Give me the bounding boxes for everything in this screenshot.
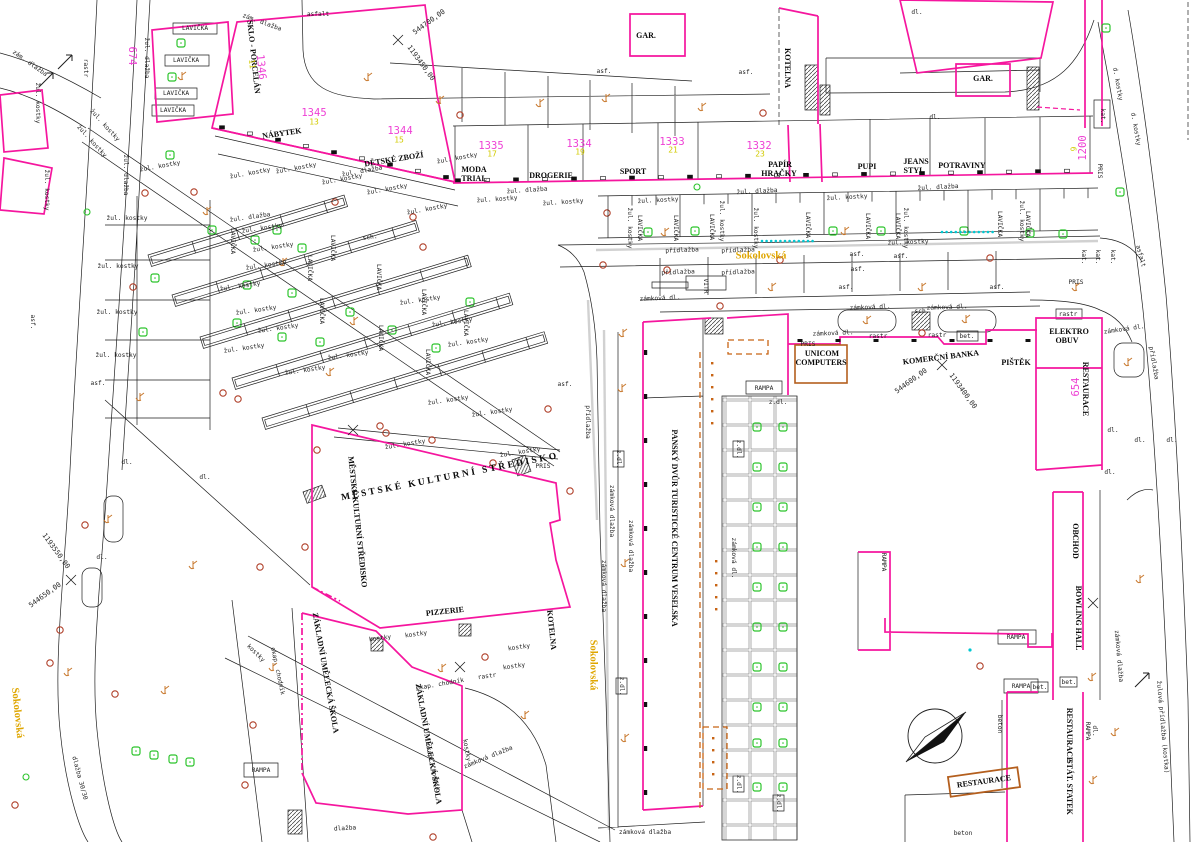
map-label: bet. xyxy=(1033,684,1048,691)
map-label: LAVIČKA xyxy=(329,235,338,261)
cyan-dot-icon xyxy=(788,240,791,243)
map-label: přídlažba xyxy=(721,245,755,254)
map-label: 17 xyxy=(487,150,497,159)
cyan-dot-icon xyxy=(968,648,971,651)
map-label: dl. xyxy=(199,474,210,481)
cyan-dot-icon xyxy=(959,231,962,234)
map-label: dl. xyxy=(1166,437,1177,444)
map-label: rastr xyxy=(1059,311,1078,318)
map-label: RAMPA xyxy=(755,385,774,392)
map-label: COMPUTERS xyxy=(795,358,847,367)
map-label: OBUV xyxy=(1055,336,1078,345)
map-label: RAMPA xyxy=(1007,634,1026,641)
map-label: LAVIČKA xyxy=(375,264,384,290)
map-label: RAMPA xyxy=(1084,722,1091,741)
map-label: z.dl. xyxy=(615,450,622,469)
map-label: zámková dl. xyxy=(730,538,738,579)
map-label: dl. xyxy=(929,114,940,121)
stairs-icon xyxy=(459,624,471,636)
map-label: beton xyxy=(954,830,973,837)
map-label: 13 xyxy=(309,118,319,127)
map-label: přídlažba xyxy=(721,267,755,276)
map-label: dl. xyxy=(121,459,132,466)
stairs-icon xyxy=(805,65,818,110)
map-label: žul. kostky xyxy=(34,83,42,124)
map-label: LAVIČKA xyxy=(672,215,681,241)
map-label: 21 xyxy=(668,146,678,155)
cyan-dot-icon xyxy=(784,240,787,243)
cyan-dot-icon xyxy=(968,231,971,234)
map-label: asf. xyxy=(739,69,754,76)
map-label: zámková dlažba xyxy=(619,828,671,836)
map-label: 15 xyxy=(394,136,404,145)
map-label: dlažba xyxy=(334,823,357,832)
cyan-dot-icon xyxy=(811,240,814,243)
map-label: sch. xyxy=(915,308,930,315)
cyan-dot-icon xyxy=(807,240,810,243)
cyan-dot-icon xyxy=(955,231,958,234)
map-label: LAVIČKA xyxy=(318,298,327,324)
map-label: PANSKÝ DVŮR TURISTICKÉ CENTRUM VESELSKA xyxy=(670,429,680,627)
map-label: 9 xyxy=(1070,146,1079,151)
map-label: RAMPA xyxy=(880,553,887,572)
map-label: kat. xyxy=(1099,109,1106,124)
map-label: LAVIČKA xyxy=(804,212,813,238)
stairs-icon xyxy=(820,85,830,115)
map-label: žul. kostky xyxy=(43,170,51,211)
stairs-icon xyxy=(288,810,302,834)
map-label: dl. xyxy=(1091,725,1098,736)
map-label: KOTELNA xyxy=(783,48,792,88)
map-label: LAVIČKA xyxy=(229,228,238,254)
map-label: přídlažba xyxy=(665,245,699,254)
map-root: MODATRIALDROGERIESPORTPAPÍRHRAČKYPUPIJEA… xyxy=(0,0,1191,842)
map-label: rastr xyxy=(82,59,89,78)
map-label: LAVIČKA xyxy=(306,255,315,281)
map-label: 1200 xyxy=(1077,135,1089,160)
map-label: OBCHOD xyxy=(1071,523,1080,559)
cyan-dot-icon xyxy=(950,231,953,234)
map-label: žul. kostky xyxy=(718,201,726,242)
map-label: rastr xyxy=(869,333,888,340)
stairs-icon xyxy=(1027,67,1039,110)
map-label: RAMPA xyxy=(1012,683,1031,690)
map-label: 19 xyxy=(575,148,585,157)
map-label: dl. xyxy=(911,9,922,16)
cyan-dot-icon xyxy=(775,240,778,243)
map-label: kat. xyxy=(1080,250,1087,265)
map-label: BOWLING HALL xyxy=(1074,586,1083,651)
map-label: RESTAURACE xyxy=(1065,708,1074,763)
map-label: zámková dlažba xyxy=(600,560,608,612)
map-label: LAVIČKA xyxy=(160,105,186,114)
map-label: zámková dl. xyxy=(812,328,853,337)
map-label: LAVIČKA xyxy=(462,310,471,336)
map-label: asf. xyxy=(851,266,866,273)
map-label: 23 xyxy=(755,150,765,159)
map-label: LAVIČKA xyxy=(424,349,433,375)
cyan-dot-icon xyxy=(761,240,764,243)
map-label: dl. xyxy=(1134,437,1145,444)
map-label: LAVIČKA xyxy=(894,213,903,239)
map-label: LAVIČKA xyxy=(636,215,645,241)
map-label: PIŠTĚK xyxy=(1001,357,1031,367)
map-label: asf. xyxy=(990,284,1005,291)
map-label: LAVIČKA xyxy=(377,325,386,351)
map-label: LAVIČKA xyxy=(182,23,208,32)
cyan-dot-icon xyxy=(798,240,801,243)
map-label: ELEKTRO xyxy=(1049,327,1089,336)
map-label: žul. kostky xyxy=(98,262,139,270)
map-label: asf. xyxy=(839,284,854,291)
map-label: PRIS xyxy=(1096,164,1103,179)
map-label: zámková dlažba xyxy=(608,485,616,537)
map-label: 654 xyxy=(1070,378,1082,397)
map-label: asf. xyxy=(894,253,909,260)
map-canvas[interactable]: MODATRIALDROGERIESPORTPAPÍRHRAČKYPUPIJEA… xyxy=(0,0,1191,842)
map-label: POTRAVINY xyxy=(938,161,986,170)
cyan-dot-icon xyxy=(802,240,805,243)
cyan-dot-icon xyxy=(770,240,773,243)
map-label: LAVIČKA xyxy=(163,88,189,97)
map-label: LAVIČKA xyxy=(173,55,199,64)
map-label: přídlažba xyxy=(661,267,695,276)
map-label: DROGERIE xyxy=(529,171,573,180)
map-label: asfalt xyxy=(307,11,330,18)
map-label: LAVIČKA xyxy=(864,213,873,239)
map-label: žul. kostky xyxy=(752,208,760,249)
map-label: HRAČKY xyxy=(761,168,797,178)
map-label: žul. dlažba xyxy=(143,38,151,79)
map-label: z.dl. xyxy=(618,677,625,696)
cyan-dot-icon xyxy=(978,231,981,234)
map-label: STYL xyxy=(904,166,925,175)
map-label: GAR. xyxy=(973,74,993,83)
map-label: žul. kostky xyxy=(97,308,138,316)
map-label: PRIS xyxy=(801,341,816,348)
cyan-dot-icon xyxy=(991,231,994,234)
map-label: PAPÍR xyxy=(768,159,792,169)
map-label: LAVIČKA xyxy=(708,214,717,240)
map-label: SPORT xyxy=(620,167,647,176)
map-label: PUPI xyxy=(858,162,877,171)
cyan-dot-icon xyxy=(987,231,990,234)
map-background xyxy=(0,0,1191,842)
map-label: PRIS xyxy=(536,463,551,470)
map-label: UNICOM xyxy=(805,349,840,358)
map-label: žul. kostky xyxy=(96,351,137,359)
map-label: bet. xyxy=(960,333,975,340)
map-label: z.dl. xyxy=(775,794,782,813)
map-label: asf. xyxy=(29,315,36,330)
map-label: zámková dl. xyxy=(639,293,680,302)
map-label: RAMPA xyxy=(252,767,271,774)
map-label: Sokolovská xyxy=(588,640,599,692)
map-label: bet. xyxy=(1062,679,1077,686)
cyan-dot-icon xyxy=(779,240,782,243)
map-label: z.dl. xyxy=(735,440,742,459)
map-label: LAVIČKA xyxy=(996,211,1005,237)
map-label: 674 xyxy=(126,47,138,66)
map-label: zámková dlažba xyxy=(627,520,635,572)
map-label: žul. kostky xyxy=(107,214,148,222)
map-label: JEANS xyxy=(903,157,929,166)
map-label: asf. xyxy=(850,251,865,258)
map-label: VITR xyxy=(702,279,709,294)
map-label: zámková dl. xyxy=(926,302,967,311)
map-label: 11 xyxy=(247,59,257,70)
map-label: žul. kostky xyxy=(1018,201,1026,242)
map-label: z.dl. xyxy=(735,775,742,794)
cyan-dot-icon xyxy=(973,231,976,234)
map-label: RESTAURACE xyxy=(1081,362,1090,417)
map-label: MODA xyxy=(461,165,487,174)
map-label: GAR. xyxy=(636,31,656,40)
map-label: dl. xyxy=(1107,427,1118,434)
map-label: kat. xyxy=(1109,250,1116,265)
map-label: žul. dlažba xyxy=(122,155,130,196)
map-label: beton xyxy=(996,715,1003,734)
cyan-dot-icon xyxy=(982,231,985,234)
map-label: dl. xyxy=(96,554,107,561)
map-label: dl. xyxy=(1104,469,1115,476)
map-label: TRIAL xyxy=(461,174,486,183)
map-label: rastr xyxy=(928,332,947,339)
cyan-dot-icon xyxy=(765,240,768,243)
map-label: přídlažba xyxy=(584,405,592,439)
map-label: PRIS xyxy=(1069,279,1084,286)
map-label: LAVIČKA xyxy=(420,289,429,315)
map-label: asf. xyxy=(91,380,106,387)
map-label: STÁT. STATEK xyxy=(1065,759,1075,815)
map-label: žul. kostky xyxy=(902,208,910,249)
map-label: kat. xyxy=(1094,250,1101,265)
map-label: zámková dl. xyxy=(849,302,890,311)
cyan-dot-icon xyxy=(793,240,796,243)
map-label: z.dl. xyxy=(769,399,788,406)
cyan-dot-icon xyxy=(964,231,967,234)
map-label: žul. kostky xyxy=(626,208,634,249)
cyan-dot-icon xyxy=(945,231,948,234)
stairs-icon xyxy=(705,318,723,334)
map-label: asf. xyxy=(597,68,612,75)
cyan-dot-icon xyxy=(941,231,944,234)
map-label: asf. xyxy=(558,381,573,388)
